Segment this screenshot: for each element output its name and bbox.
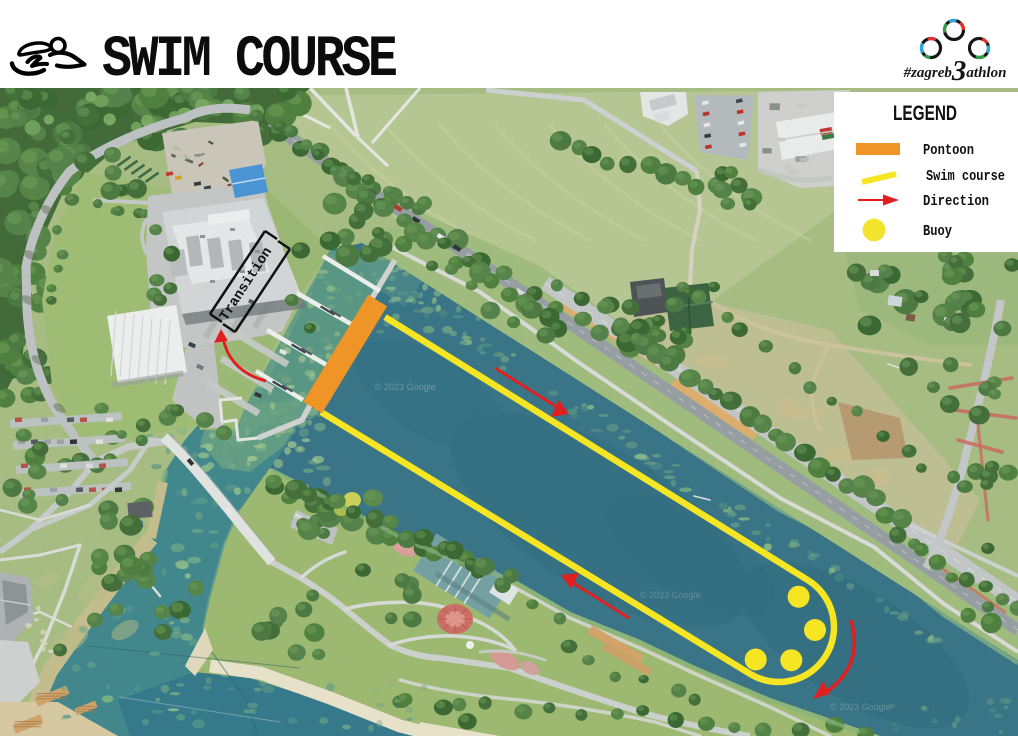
- svg-text:Pontoon: Pontoon: [923, 142, 974, 159]
- svg-text:Swim course: Swim course: [926, 168, 1005, 185]
- svg-text:LEGEND: LEGEND: [893, 102, 957, 125]
- svg-text:© 2023 Google: © 2023 Google: [830, 702, 891, 712]
- svg-text:© 2023 Google: © 2023 Google: [640, 590, 701, 600]
- svg-text:© 2023 Google: © 2023 Google: [375, 382, 436, 392]
- svg-text:Direction: Direction: [923, 193, 989, 210]
- svg-text:Buoy: Buoy: [923, 223, 952, 240]
- svg-text:SWIM COURSE: SWIM COURSE: [102, 28, 397, 93]
